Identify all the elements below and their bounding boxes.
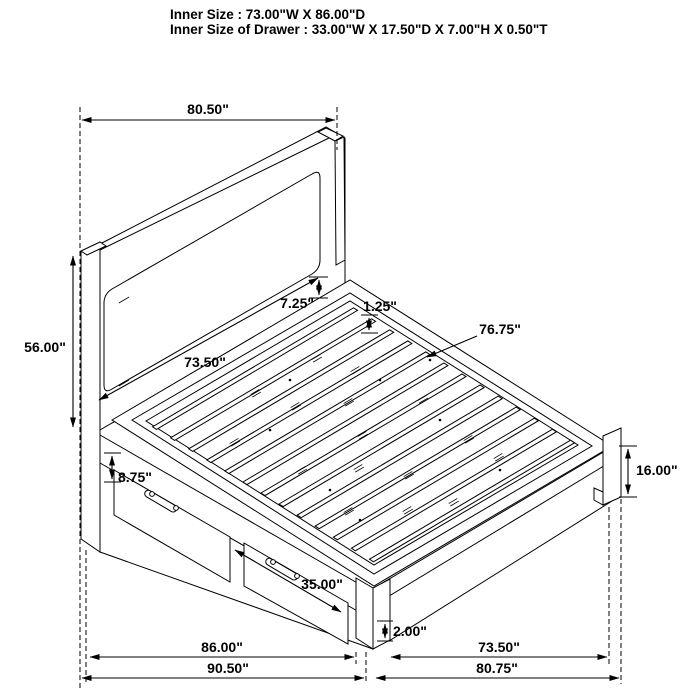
dim-inner-platform-width: 73.50": [391, 639, 607, 657]
title-line-1: Inner Size : 73.00"W X 86.00"D: [170, 7, 365, 22]
dim-frame-depth: 86.00": [90, 639, 354, 657]
dim-frame-depth-label: 86.00": [201, 639, 243, 655]
bed-dimension-diagram: Inner Size : 73.00"W X 86.00"D Inner Siz…: [0, 0, 700, 700]
dim-floor-clearance-label: 2.00": [393, 623, 427, 639]
dim-overall-width-label: 80.75": [476, 660, 518, 676]
dim-footboard-leg-height-label: 16.00": [636, 462, 678, 478]
dim-drawer-front-width-label: 35.00": [301, 576, 343, 592]
foot-left-leg-side: [373, 579, 390, 649]
foot-left-leg-front: [356, 578, 373, 649]
title-line-2: Inner Size of Drawer : 33.00"W X 17.50"D…: [170, 22, 548, 37]
dim-bed-height: 56.00": [24, 256, 73, 427]
headboard-right-post: [335, 137, 345, 265]
dim-panel-to-rail-gap-label: 7.25": [280, 295, 314, 311]
dim-inner-platform-width-label: 73.50": [478, 639, 520, 655]
diagram-svg: Inner Size : 73.00"W X 86.00"D Inner Siz…: [0, 0, 700, 700]
dim-headboard-width: 80.50": [82, 101, 335, 120]
dim-slat-area-depth-label: 76.75": [479, 321, 521, 337]
dim-floor-clearance: 2.00": [377, 621, 427, 641]
dim-overall-depth-label: 90.50": [207, 660, 249, 676]
dim-overall-depth: 90.50": [82, 660, 364, 678]
dim-headboard-width-label: 80.50": [187, 101, 229, 117]
dim-overall-width: 80.75": [376, 660, 619, 678]
dim-slat-recess-label: 1.25": [363, 298, 397, 314]
dim-footboard-leg-height: 16.00": [619, 446, 678, 497]
dim-headboard-panel-width-label: 73.50": [184, 354, 226, 370]
dim-side-rail-height-label: 8.75": [118, 469, 152, 485]
dim-bed-height-label: 56.00": [24, 339, 66, 355]
foot-right-leg: [603, 428, 621, 505]
headboard-left-post: [81, 243, 100, 552]
